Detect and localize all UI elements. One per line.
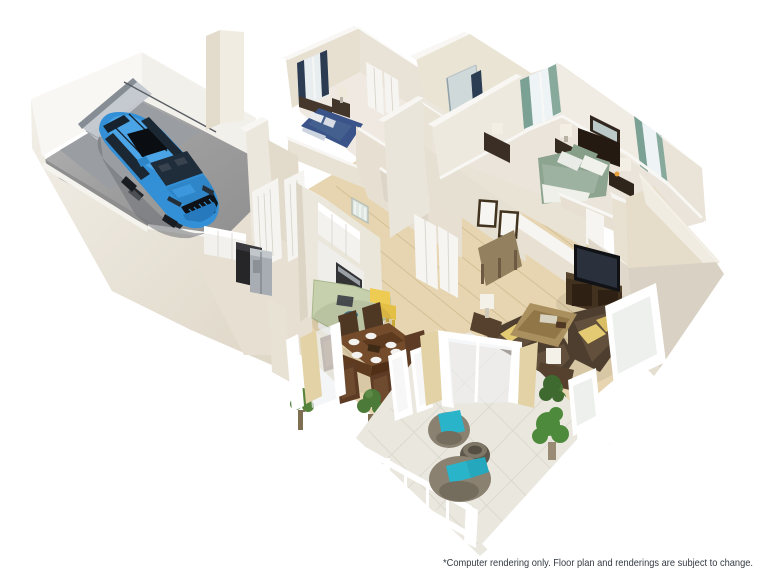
svg-text:*Computer rendering only. Floo: *Computer rendering only. Floor plan and… bbox=[443, 557, 753, 569]
